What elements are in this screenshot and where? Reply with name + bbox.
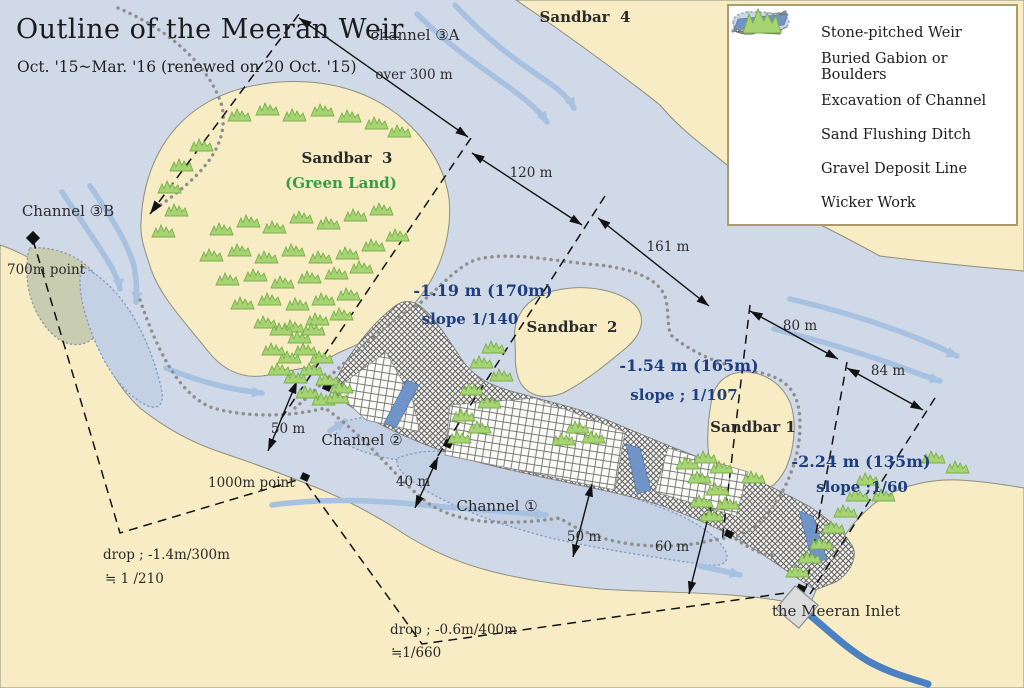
slope-2-label: slope ; 1/107 — [630, 386, 737, 404]
sandbar-1-label: Sandbar 1 — [710, 418, 796, 436]
sandbar-3-label: Sandbar 3 — [302, 149, 393, 167]
legend-item-label: Wicker Work — [821, 195, 916, 211]
drop-1-ratio-label: ≒ 1 /210 — [105, 571, 164, 587]
measure-50m-lower-label: 50 m — [567, 529, 601, 545]
depth-2-label: -1.54 m (165m) — [619, 356, 758, 375]
legend-item-label: Sand Flushing Ditch — [821, 127, 971, 143]
drop-1-label: drop ; -1.4m/300m — [103, 547, 230, 563]
map-canvas: Sandbar 4 channel ③A over 300 m Sandbar … — [0, 0, 1024, 688]
channel-1-label: Channel ① — [456, 497, 537, 515]
point-700m-label: 700m point — [7, 262, 86, 278]
legend-item-gravel-deposit-line: Gravel Deposit Line — [729, 152, 1016, 186]
measure-84m-label: 84 m — [871, 363, 905, 379]
channel-3b-label: Channel ③B — [22, 202, 114, 220]
legend-item-sand-flushing-ditch: Sand Flushing Ditch — [729, 118, 1016, 152]
legend-item-label: Excavation of Channel — [821, 93, 986, 109]
slope-1-label: slope 1/140 — [422, 310, 519, 328]
page-subtitle: Oct. '15~Mar. '16 (renewed on 20 Oct. '1… — [17, 58, 357, 76]
legend-item-label: Stone-pitched Weir — [821, 25, 962, 41]
point-1000m-label: 1000m point — [208, 475, 295, 491]
drop-2-label: drop ; -0.6m/400m — [390, 622, 517, 638]
measure-80m-label: 80 m — [783, 318, 817, 334]
slope-3-label: slope ;1/60 — [816, 478, 908, 496]
measure-50m-upper-label: 50 m — [271, 421, 305, 437]
page-title: Outline of the Meeran Weir — [16, 14, 404, 45]
depth-1-label: -1.19 m (170m) — [413, 281, 552, 300]
sandbar-4-label: Sandbar 4 — [540, 8, 631, 26]
channel-2-label: Channel ② — [321, 431, 402, 449]
legend-item-buried-gabion: Buried Gabion or Boulders — [729, 50, 1016, 84]
sandbar-2-label: Sandbar 2 — [527, 318, 618, 336]
measure-161m-label: 161 m — [647, 239, 690, 255]
legend-item-label: Buried Gabion or Boulders — [821, 51, 1016, 83]
measure-120m-label: 120 m — [510, 165, 553, 181]
drop-2-ratio-label: ≒1/660 — [391, 645, 441, 661]
measure-60m-label: 60 m — [655, 539, 689, 555]
over-300m-label: over 300 m — [375, 67, 453, 83]
legend-item-excavation: Excavation of Channel — [729, 84, 1016, 118]
legend-item-label: Gravel Deposit Line — [821, 161, 967, 177]
green-land-label: (Green Land) — [285, 174, 397, 192]
measure-40m-label: 40 m — [396, 474, 430, 490]
legend-item-wicker-work: Wicker Work — [729, 186, 1016, 220]
legend-box: Stone-pitched Weir Buried Gabion or Boul… — [727, 4, 1018, 226]
depth-3-label: -2.24 m (135m) — [791, 452, 930, 471]
meeran-inlet-label: the Meeran Inlet — [772, 602, 900, 620]
